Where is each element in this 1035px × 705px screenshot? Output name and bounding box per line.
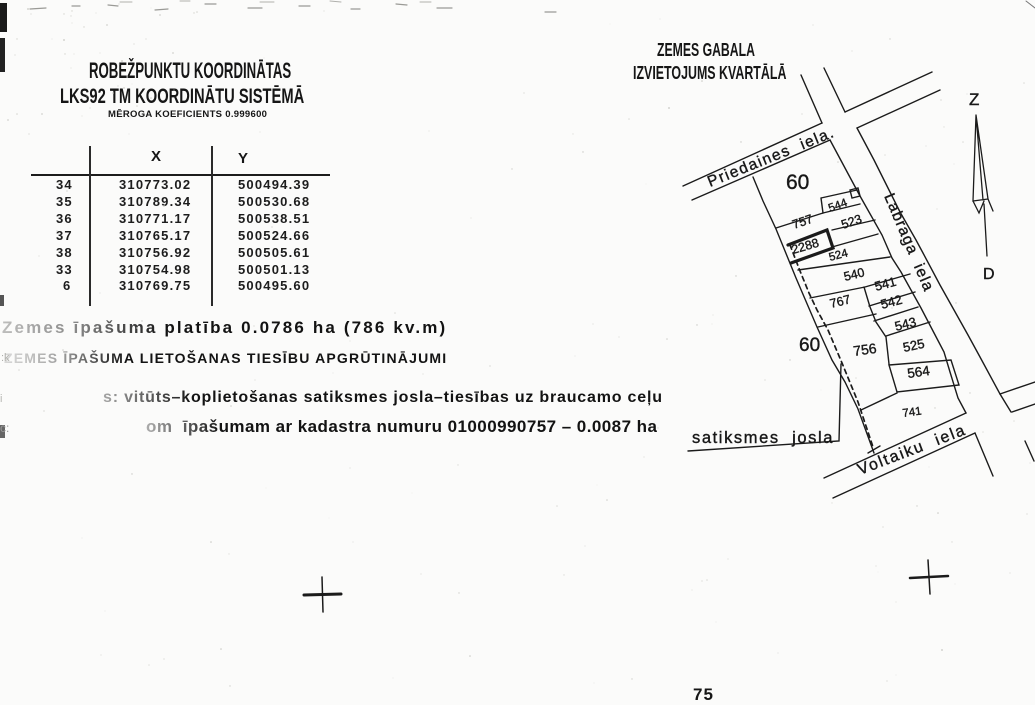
svg-text:541: 541	[873, 274, 898, 294]
svg-text:564: 564	[906, 363, 931, 381]
svg-text:767: 767	[828, 292, 852, 311]
svg-text:60: 60	[786, 171, 809, 194]
svg-text:60: 60	[799, 335, 820, 356]
svg-text:Z: Z	[969, 90, 979, 109]
svg-text:523: 523	[839, 212, 863, 232]
svg-text:540: 540	[842, 265, 866, 284]
svg-text:satiksmes josla: satiksmes josla	[692, 429, 834, 447]
svg-text:Priedaines iela.: Priedaines iela.	[705, 124, 837, 191]
svg-text:525: 525	[902, 336, 926, 355]
svg-text:741: 741	[902, 405, 923, 420]
svg-text:542: 542	[879, 292, 904, 312]
svg-text:544: 544	[827, 197, 850, 215]
svg-text:756: 756	[852, 340, 878, 359]
svg-text:543: 543	[893, 314, 918, 334]
svg-text:757: 757	[790, 212, 814, 232]
svg-text:D: D	[983, 266, 995, 283]
